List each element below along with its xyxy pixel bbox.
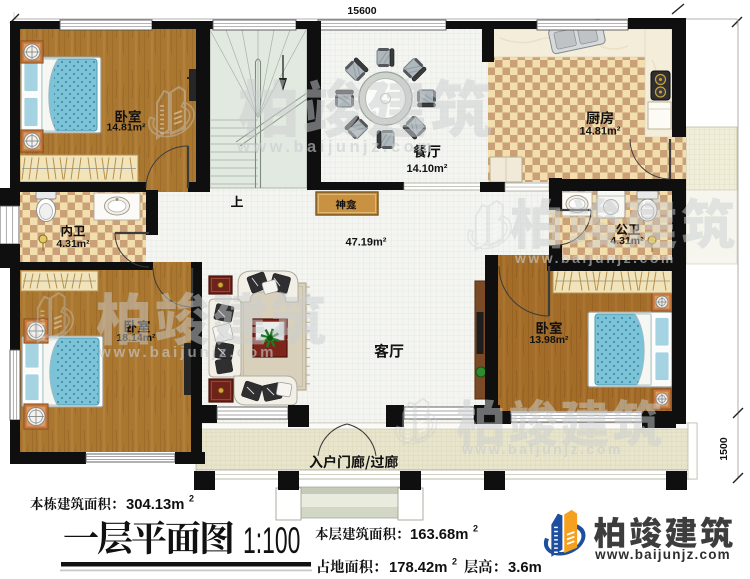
svg-text:13.98m²: 13.98m² xyxy=(529,334,569,346)
svg-text:www.baijunjz.com: www.baijunjz.com xyxy=(514,250,676,266)
svg-text:14.81m²: 14.81m² xyxy=(580,126,621,138)
svg-text:1:100: 1:100 xyxy=(243,519,300,561)
svg-text:178.42m: 178.42m xyxy=(389,560,447,576)
svg-text:2: 2 xyxy=(452,557,457,567)
svg-text:163.68m: 163.68m xyxy=(410,527,468,543)
svg-text:www.baijunjz.com: www.baijunjz.com xyxy=(594,547,731,562)
svg-text:304.13m: 304.13m xyxy=(126,497,184,513)
svg-text:47.19m²: 47.19m² xyxy=(346,237,387,249)
svg-text:4.31m²: 4.31m² xyxy=(56,238,90,250)
svg-text:15600: 15600 xyxy=(347,5,376,17)
svg-text:www.baijunjz.com: www.baijunjz.com xyxy=(236,138,435,156)
svg-text:www.baijunjz.com: www.baijunjz.com xyxy=(98,344,276,361)
svg-text:2: 2 xyxy=(473,524,478,534)
svg-text:2: 2 xyxy=(189,494,194,504)
svg-text:3.6m: 3.6m xyxy=(508,560,542,576)
svg-text:1500: 1500 xyxy=(718,437,730,461)
svg-text:14.10m²: 14.10m² xyxy=(407,163,448,175)
svg-text:www.baijunjz.com: www.baijunjz.com xyxy=(461,441,623,457)
svg-text:14.81m²: 14.81m² xyxy=(106,122,146,134)
